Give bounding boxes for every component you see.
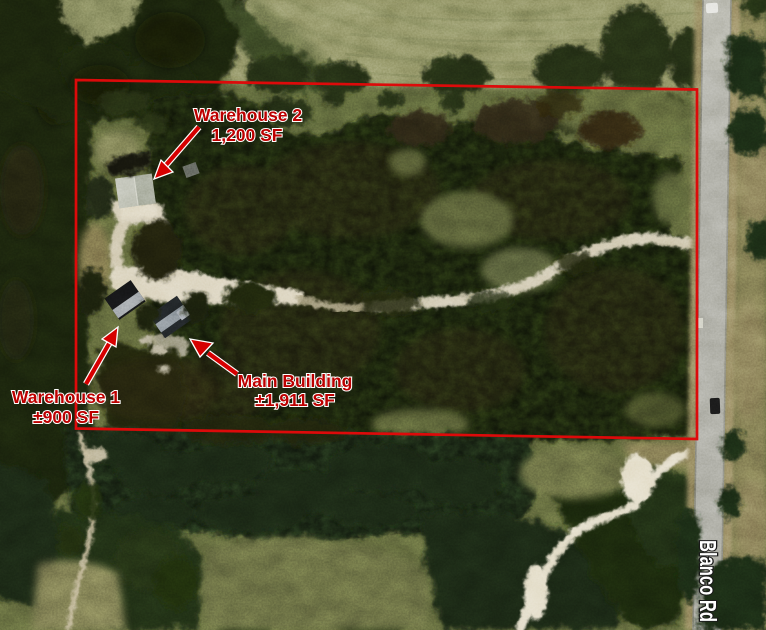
svg-text:Main Building: Main Building	[238, 371, 353, 391]
svg-text:1,200 SF: 1,200 SF	[211, 125, 282, 145]
svg-text:±900 SF: ±900 SF	[33, 407, 99, 427]
svg-text:Blanco Rd: Blanco Rd	[695, 540, 721, 622]
svg-text:Warehouse 2: Warehouse 2	[194, 105, 303, 125]
svg-text:Warehouse 1: Warehouse 1	[12, 387, 121, 407]
svg-text:±1,911 SF: ±1,911 SF	[255, 390, 335, 410]
